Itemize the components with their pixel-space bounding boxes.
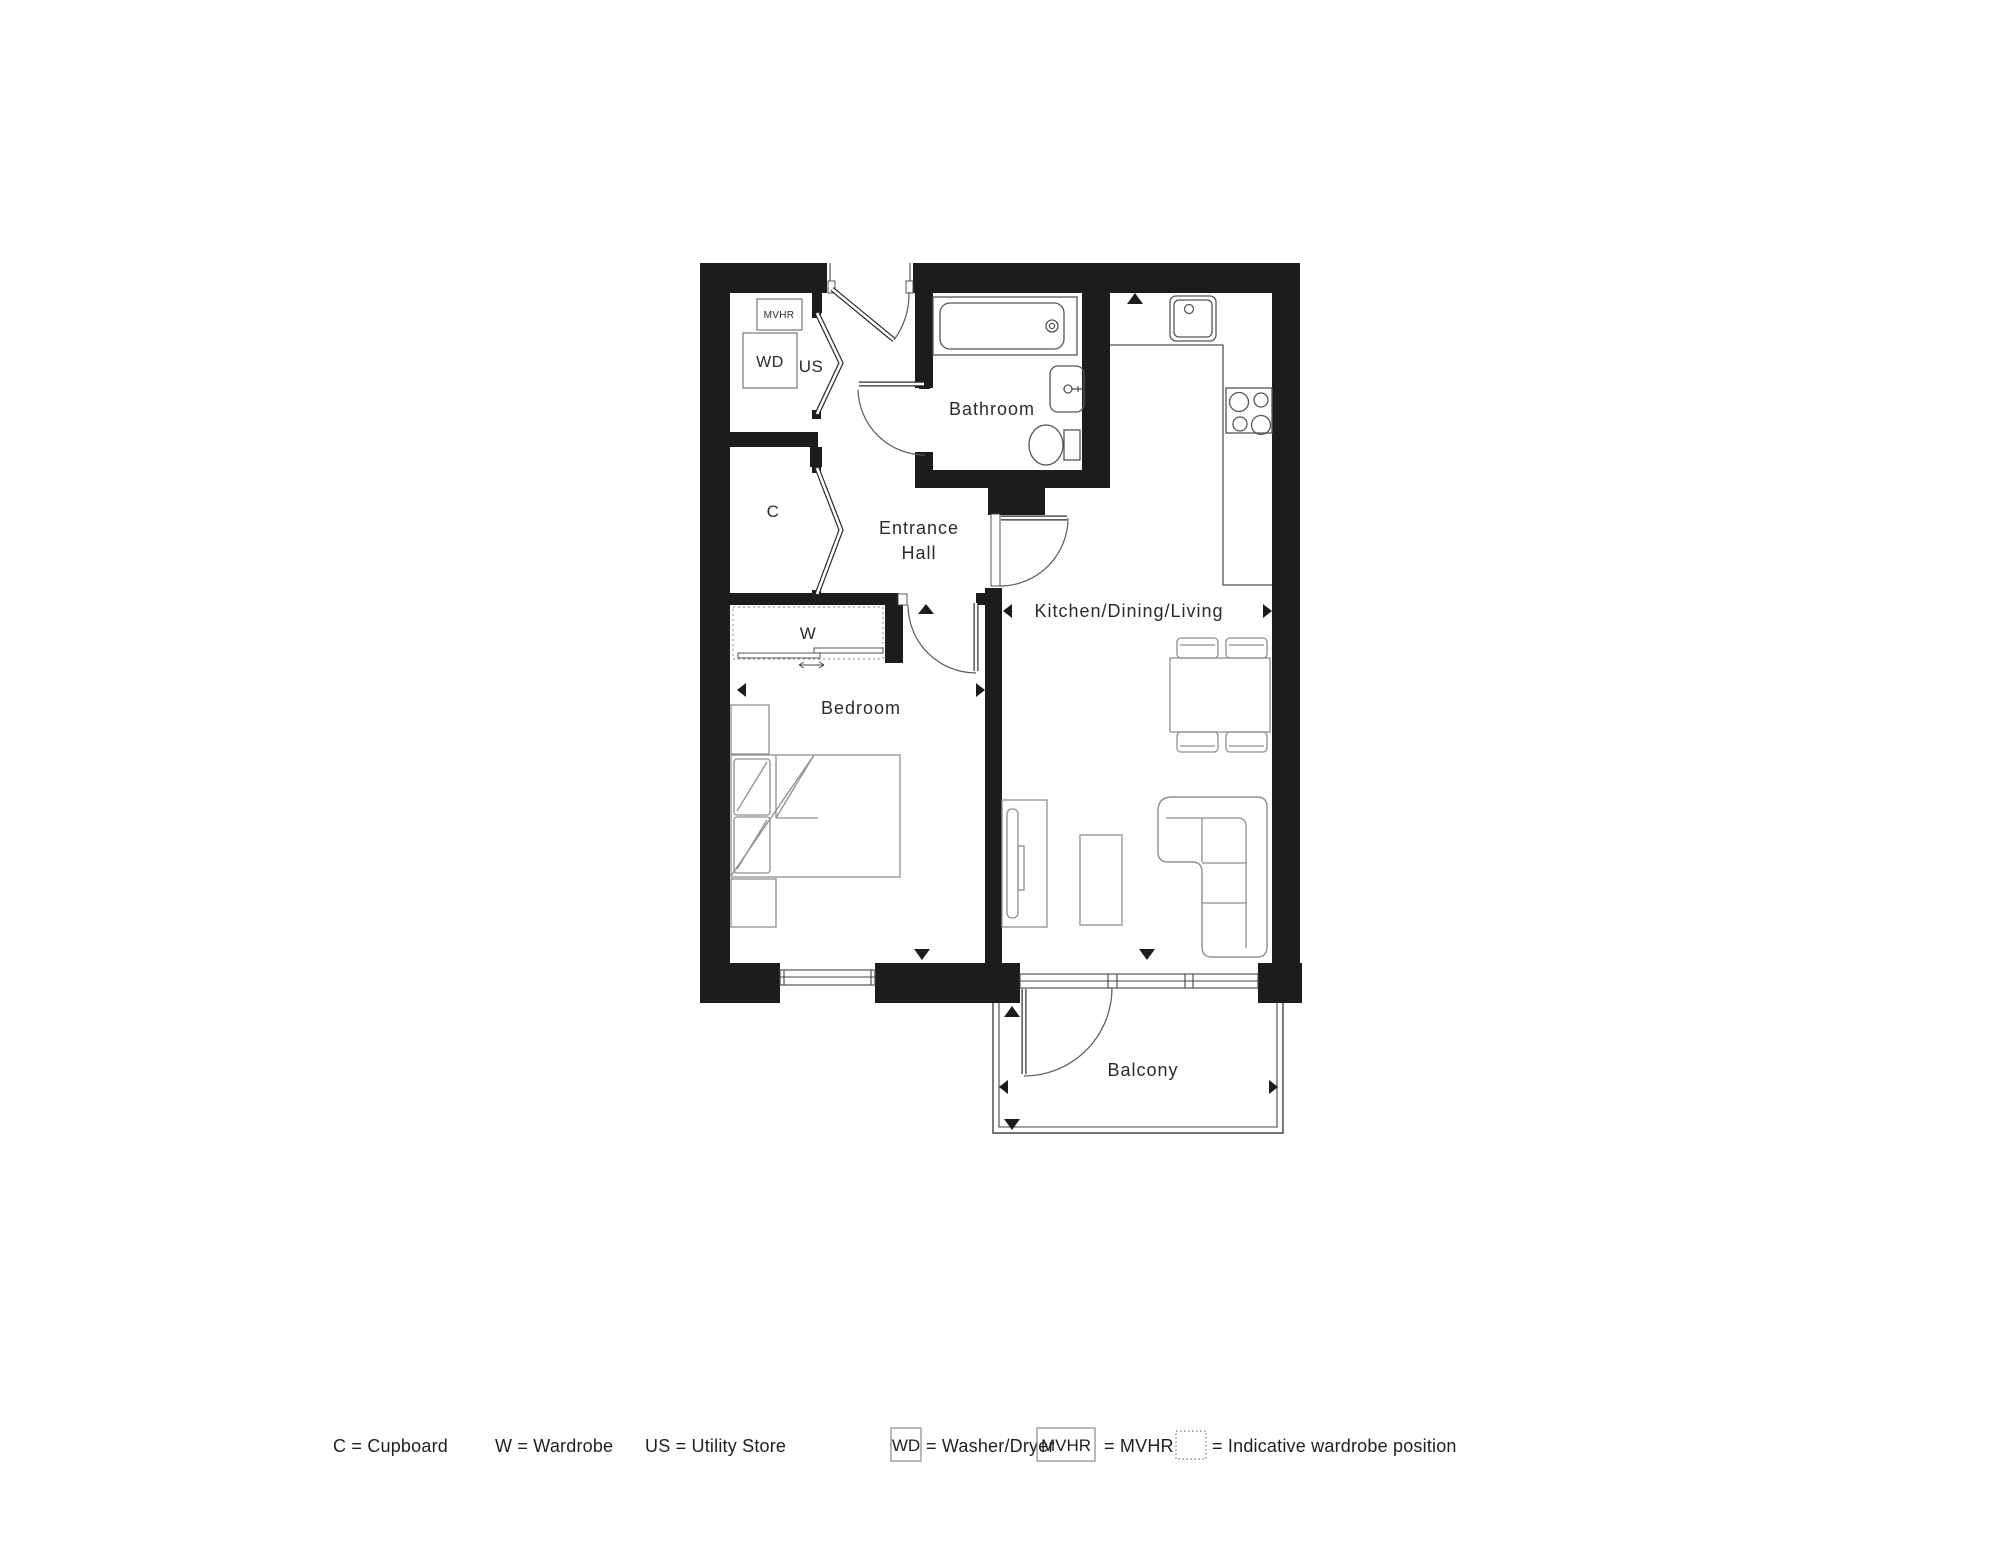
legend-mvhr: = MVHR <box>1104 1436 1174 1456</box>
dining-chair <box>1226 638 1267 658</box>
sliding-arrow-icon <box>799 662 824 668</box>
kitchen-counter <box>1110 345 1272 585</box>
bedroom-label: Bedroom <box>821 698 901 718</box>
entrance-hall-label-line2: Hall <box>901 543 936 563</box>
corner-sofa <box>1158 797 1267 957</box>
legend-mvhr-symbol: MVHR <box>1041 1436 1091 1455</box>
kitchen-dining-living-label: Kitchen/Dining/Living <box>1034 601 1223 621</box>
dimension-arrow-down-icon <box>1004 1119 1020 1130</box>
bedroom-window <box>780 970 875 985</box>
bed <box>731 755 900 877</box>
legend-washer-dryer: = Washer/Dryer <box>926 1436 1055 1456</box>
hob <box>1226 388 1272 435</box>
dimension-arrow-up-icon <box>1004 1006 1020 1017</box>
mvhr-marker: MVHR <box>764 310 795 321</box>
dimension-arrow-up-icon <box>918 604 934 614</box>
floor-plan-page: Bathroom Entrance Hall Kitchen/Dining/Li… <box>0 0 2000 1561</box>
windows <box>780 263 1258 988</box>
fixtures <box>743 296 1272 585</box>
dimension-arrow-down-icon <box>1139 949 1155 960</box>
bathtub <box>933 297 1077 355</box>
utility-store-marker: US <box>799 357 824 376</box>
coffee-table <box>1080 835 1122 925</box>
dimension-arrow-up-icon <box>1127 293 1143 304</box>
legend-wd-symbol: WD <box>892 1436 920 1455</box>
bathroom-label: Bathroom <box>949 399 1035 419</box>
dimension-arrow-right-icon <box>976 683 985 697</box>
dining-chair <box>1226 732 1267 752</box>
basin <box>1050 366 1084 412</box>
living-glazing <box>1020 974 1258 988</box>
legend-indicative-wardrobe-box <box>1176 1431 1206 1459</box>
dimension-arrow-left-icon <box>999 1080 1008 1094</box>
dining-chair <box>1177 732 1218 752</box>
legend-wardrobe: W = Wardrobe <box>495 1436 613 1456</box>
bedroom-door <box>898 594 976 673</box>
legend-cupboard: C = Cupboard <box>333 1436 448 1456</box>
kitchen-door <box>991 514 1068 586</box>
dimension-arrow-down-icon <box>914 949 930 960</box>
kitchen-sink <box>1170 296 1216 341</box>
cupboard-bifold-door <box>817 468 841 594</box>
legend-utility-store: US = Utility Store <box>645 1436 786 1456</box>
dining-chair <box>1177 638 1218 658</box>
dimension-arrow-right-icon <box>1263 604 1272 618</box>
washer-dryer-marker: WD <box>756 354 784 371</box>
entrance-hall-label-line1: Entrance <box>879 518 959 538</box>
tv-unit <box>1002 800 1047 927</box>
dimension-arrow-left-icon <box>737 683 746 697</box>
toilet <box>1029 425 1080 465</box>
legend-indicative-wardrobe: = Indicative wardrobe position <box>1212 1436 1457 1456</box>
nightstand <box>731 705 769 754</box>
walls <box>700 263 1302 1003</box>
balcony-label: Balcony <box>1107 1060 1178 1080</box>
bathroom-door <box>858 384 925 455</box>
nightstand <box>731 879 776 927</box>
legend: C = Cupboard W = Wardrobe US = Utility S… <box>333 1428 1457 1461</box>
floor-plan: Bathroom Entrance Hall Kitchen/Dining/Li… <box>0 0 2000 1561</box>
balcony-door <box>1024 988 1112 1076</box>
wardrobe-marker: W <box>800 624 817 643</box>
entry-recess <box>827 263 913 292</box>
dining-table <box>1170 658 1270 732</box>
cupboard-marker: C <box>767 502 780 521</box>
dimension-arrow-left-icon <box>1003 604 1012 618</box>
